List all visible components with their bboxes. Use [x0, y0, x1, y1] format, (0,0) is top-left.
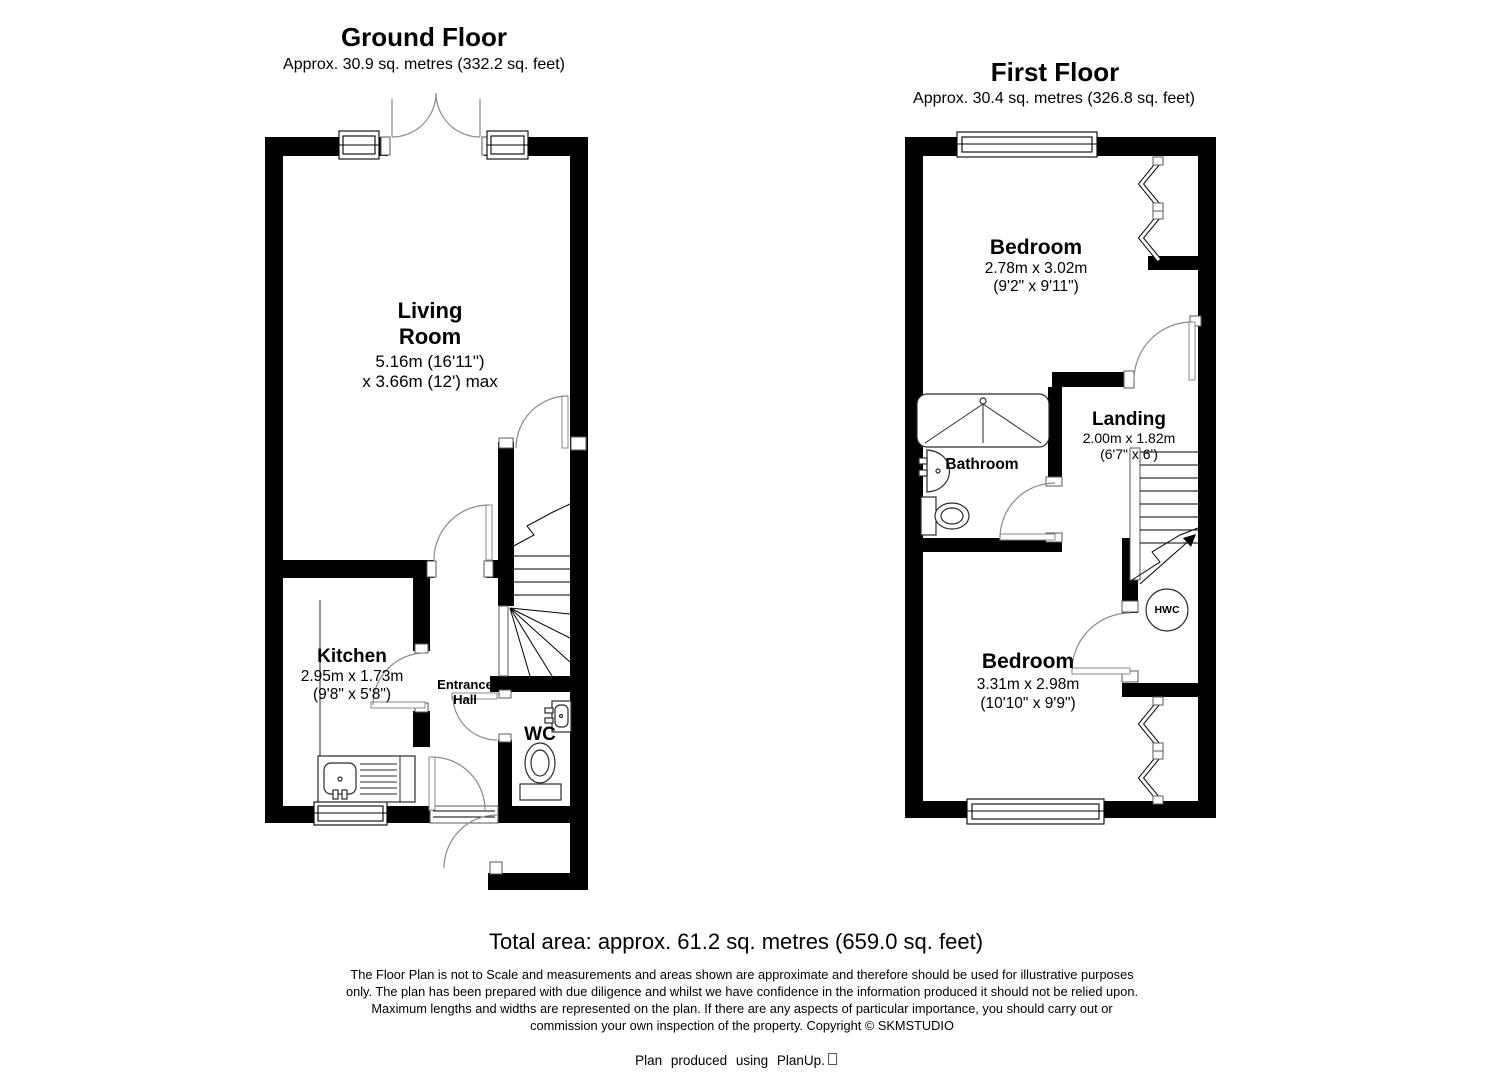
landing-label: Landing: [1092, 409, 1166, 431]
kitchen-dims2: (9'8" x 5'8"): [313, 686, 391, 704]
kitchen-label: Kitchen: [317, 646, 387, 668]
entrance-hall-label: Entrance: [437, 677, 493, 692]
living-room-dims: 5.16m (16'11"): [375, 352, 484, 372]
entrance-hall-label2: Hall: [453, 692, 477, 707]
disclaimer-line-2: only. The plan has been prepared with du…: [346, 984, 1138, 999]
bathroom-label: Bathroom: [945, 456, 1018, 474]
floor-plan-drawing: [0, 0, 1485, 1080]
kitchen-sink-icon: [318, 756, 415, 802]
landing-dims: 2.00m x 1.82m: [1083, 430, 1176, 446]
first-floor-area: Approx. 30.4 sq. metres (326.8 sq. feet): [913, 90, 1195, 108]
living-room-dims2: x 3.66m (12') max: [362, 372, 498, 392]
back-bedroom-dims2: (10'10" x 9'9"): [980, 695, 1075, 713]
disclaimer-line-3: Maximum lengths and widths are represent…: [371, 1001, 1112, 1016]
living-room-label: Living: [398, 298, 463, 324]
landing-dims2: (6'7" x 6'): [1100, 446, 1158, 462]
missing-glyph-box-icon: [828, 1053, 837, 1065]
ff-staircase: [1130, 448, 1198, 584]
ground-floor-area: Approx. 30.9 sq. metres (332.2 sq. feet): [283, 56, 565, 74]
front-bedroom-label: Bedroom: [990, 236, 1082, 260]
french-doors: [381, 93, 491, 157]
back-bedroom-label: Bedroom: [982, 650, 1074, 674]
floor-plan-page: Ground Floor Approx. 30.9 sq. metres (33…: [0, 0, 1485, 1080]
wc-label: WC: [524, 724, 556, 746]
wardrobe-doors-front-bedroom: [1141, 157, 1163, 260]
ground-floor-drawing: [265, 93, 588, 890]
bath-icon: [917, 394, 1049, 447]
planup-credit: Plan produced using PlanUp.: [635, 1053, 837, 1068]
front-bedroom-dims: 2.78m x 3.02m: [985, 260, 1088, 278]
hwc-label: HWC: [1154, 604, 1179, 616]
disclaimer-line-4: commission your own inspection of the pr…: [530, 1018, 954, 1033]
total-area-text: Total area: approx. 61.2 sq. metres (659…: [489, 929, 983, 955]
wc-toilet-icon: [520, 743, 561, 800]
disclaimer-line-1: The Floor Plan is not to Scale and measu…: [350, 967, 1133, 982]
ground-floor-title: Ground Floor: [341, 22, 507, 53]
front-bedroom-dims2: (9'2" x 9'11"): [993, 278, 1079, 296]
back-bedroom-dims: 3.31m x 2.98m: [977, 676, 1080, 694]
first-floor-title: First Floor: [991, 57, 1120, 88]
living-room-label2: Room: [399, 324, 461, 350]
bathroom-toilet-icon: [921, 497, 969, 535]
planup-credit-text: Plan produced using PlanUp.: [635, 1053, 825, 1068]
kitchen-dims: 2.95m x 1.73m: [301, 668, 404, 686]
wardrobe-doors-back-bedroom: [1141, 697, 1163, 804]
